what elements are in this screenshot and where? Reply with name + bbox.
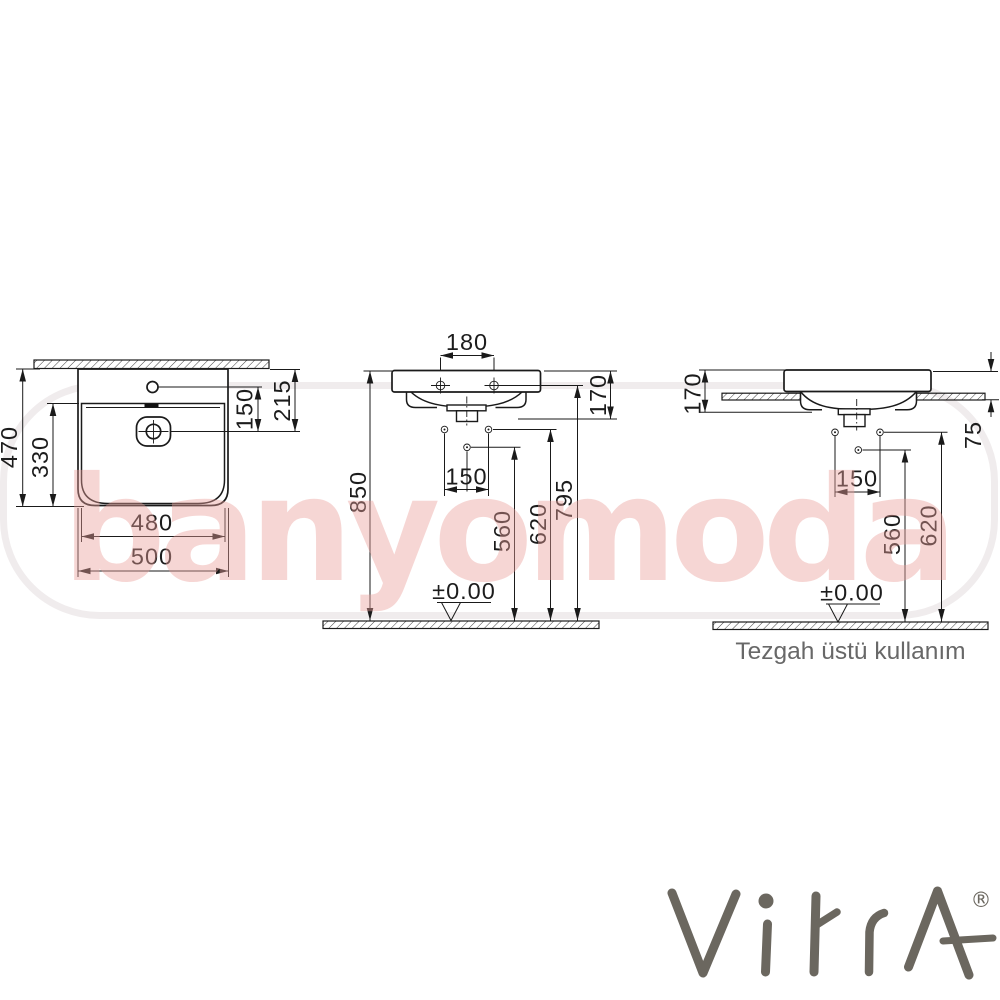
logo-letter-a-bar	[943, 938, 993, 941]
drain-flange	[447, 405, 486, 411]
bowl-underside-side	[801, 392, 917, 410]
dim-label-above-counter: 75	[960, 421, 986, 449]
logo-letter-v	[672, 893, 736, 973]
dim-label-body-height-side: 170	[680, 372, 706, 414]
counter-section-left	[722, 393, 801, 400]
dim-label-rim-to-drain: 215	[269, 379, 295, 421]
basin-body-side	[784, 370, 931, 392]
floor-section-bar	[323, 621, 599, 629]
counter-section-right	[917, 393, 986, 400]
logo-letter-t-stem	[814, 896, 816, 972]
logo-letter-a-legs	[909, 891, 970, 975]
drain-flange-side	[838, 409, 870, 415]
basin-body-front	[392, 371, 541, 393]
registered-trademark: ®	[971, 888, 992, 912]
wall-section-bar	[34, 360, 269, 369]
logo-letter-i	[766, 924, 768, 972]
drain-outlet-side	[844, 415, 865, 427]
installation-caption: Tezgah üstü kullanım	[735, 638, 965, 665]
dim-label-tap-spacing: 180	[446, 329, 488, 355]
dim-label-overall-depth: 470	[0, 426, 22, 468]
logo-letter-r	[869, 913, 884, 972]
dim-label-body-height: 170	[585, 374, 611, 416]
technical-drawing-page: 470 330 150 215 480 500	[0, 0, 1000, 1000]
vitra-logo: VitrA ®	[672, 888, 993, 975]
watermark-text: banyomoda	[62, 446, 950, 615]
overflow-slot	[145, 404, 159, 407]
dim-label-tap-to-drain: 150	[232, 388, 258, 430]
logo-letter-i-dot	[759, 894, 774, 909]
drawing-canvas: 470 330 150 215 480 500	[0, 0, 1000, 1000]
floor-section-bar-side	[713, 622, 988, 630]
dim-label-bowl-depth: 330	[27, 436, 53, 478]
